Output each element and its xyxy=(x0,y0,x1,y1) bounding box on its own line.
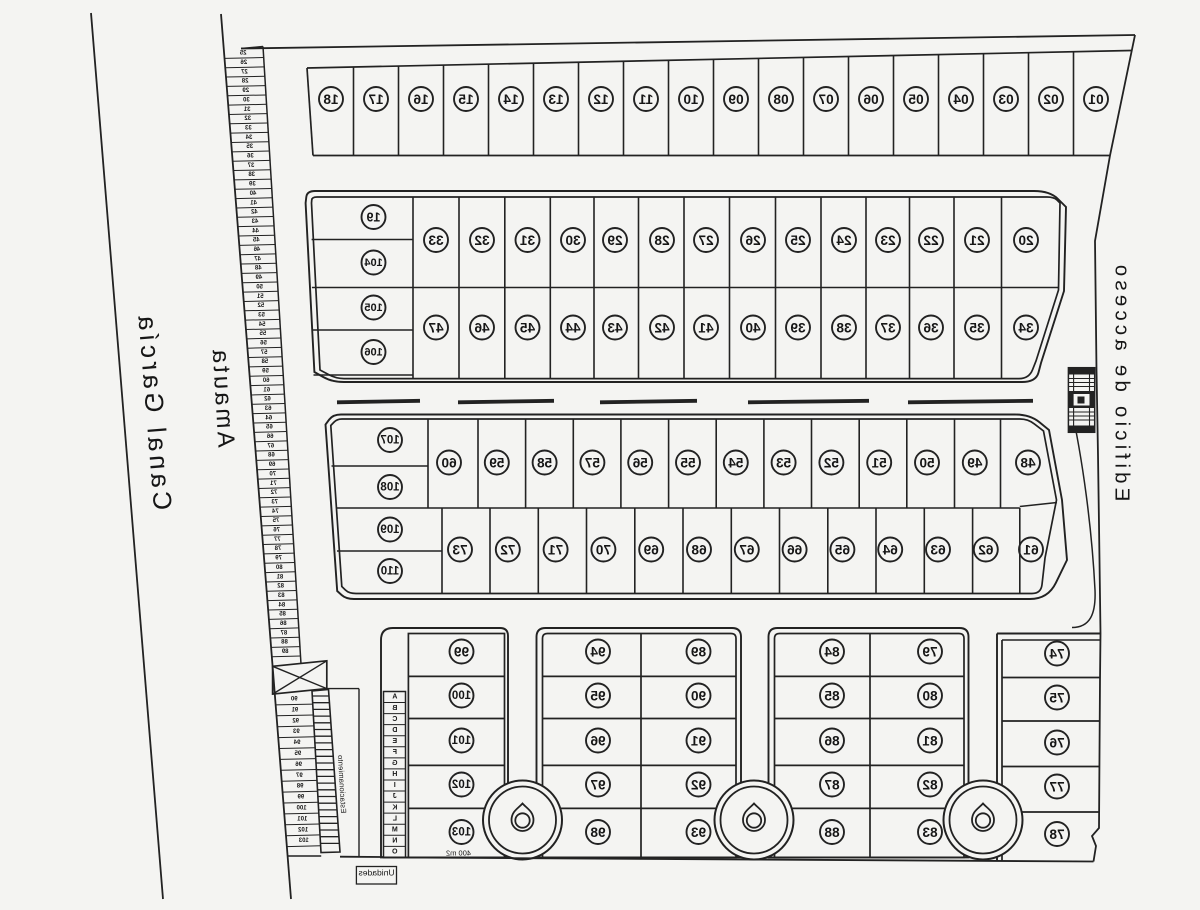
svg-text:47: 47 xyxy=(428,321,443,336)
svg-text:23: 23 xyxy=(880,233,896,248)
svg-text:48: 48 xyxy=(254,266,261,272)
svg-text:80: 80 xyxy=(275,565,282,571)
svg-text:82: 82 xyxy=(277,584,284,590)
svg-text:37: 37 xyxy=(880,321,895,336)
svg-text:70: 70 xyxy=(596,543,611,558)
svg-text:60: 60 xyxy=(441,456,456,471)
svg-text:55: 55 xyxy=(259,331,266,337)
svg-text:50: 50 xyxy=(919,456,934,471)
svg-text:69: 69 xyxy=(643,543,659,558)
svg-text:92: 92 xyxy=(292,718,299,724)
svg-text:44: 44 xyxy=(565,321,581,336)
svg-text:46: 46 xyxy=(474,321,490,336)
svg-text:84: 84 xyxy=(278,602,285,608)
svg-text:64: 64 xyxy=(882,543,898,558)
svg-text:30: 30 xyxy=(242,97,249,103)
svg-text:01: 01 xyxy=(1088,92,1104,107)
svg-text:63: 63 xyxy=(264,406,271,412)
svg-text:58: 58 xyxy=(537,456,553,471)
svg-text:88: 88 xyxy=(281,640,288,646)
svg-text:58: 58 xyxy=(261,359,268,365)
svg-text:97: 97 xyxy=(590,778,605,793)
svg-text:73: 73 xyxy=(271,499,278,505)
svg-text:95: 95 xyxy=(294,751,301,757)
svg-text:90: 90 xyxy=(691,689,706,704)
svg-text:03: 03 xyxy=(998,92,1014,107)
svg-text:42: 42 xyxy=(250,210,257,216)
svg-text:30: 30 xyxy=(565,233,580,248)
svg-text:109: 109 xyxy=(380,524,399,536)
svg-text:27: 27 xyxy=(698,233,713,248)
svg-text:09: 09 xyxy=(728,92,744,107)
svg-text:H: H xyxy=(392,771,397,778)
svg-text:71: 71 xyxy=(269,481,276,487)
svg-text:33: 33 xyxy=(428,233,444,248)
svg-text:51: 51 xyxy=(871,456,887,471)
svg-text:27: 27 xyxy=(240,69,247,75)
svg-text:13: 13 xyxy=(548,92,564,107)
svg-text:F: F xyxy=(392,749,397,756)
svg-text:82: 82 xyxy=(922,778,938,793)
svg-text:94: 94 xyxy=(293,740,300,746)
svg-text:41: 41 xyxy=(698,321,714,336)
svg-text:02: 02 xyxy=(1043,92,1059,107)
svg-text:79: 79 xyxy=(275,556,282,562)
svg-text:78: 78 xyxy=(274,546,281,552)
svg-text:M: M xyxy=(392,826,398,833)
svg-text:69: 69 xyxy=(268,462,275,468)
svg-text:E: E xyxy=(392,738,397,745)
svg-text:42: 42 xyxy=(654,321,670,336)
svg-text:102: 102 xyxy=(297,827,308,833)
svg-text:N: N xyxy=(392,837,397,844)
svg-text:76: 76 xyxy=(273,528,280,534)
svg-text:400 m2: 400 m2 xyxy=(446,848,471,857)
svg-text:52: 52 xyxy=(823,456,839,471)
svg-text:61: 61 xyxy=(263,387,270,393)
svg-text:43: 43 xyxy=(607,321,623,336)
svg-text:40: 40 xyxy=(745,321,760,336)
svg-text:67: 67 xyxy=(739,543,754,558)
svg-text:40: 40 xyxy=(249,191,256,197)
svg-text:17: 17 xyxy=(368,92,383,107)
svg-text:39: 39 xyxy=(790,321,806,336)
svg-text:88: 88 xyxy=(824,825,840,840)
svg-text:57: 57 xyxy=(260,350,267,356)
svg-text:85: 85 xyxy=(824,689,840,704)
svg-text:62: 62 xyxy=(978,543,994,558)
svg-text:26: 26 xyxy=(745,233,761,248)
svg-text:28: 28 xyxy=(654,233,670,248)
svg-text:A: A xyxy=(392,694,397,701)
svg-text:O: O xyxy=(392,849,398,856)
svg-text:63: 63 xyxy=(930,543,946,558)
svg-text:08: 08 xyxy=(773,92,789,107)
svg-text:32: 32 xyxy=(244,116,251,122)
svg-text:74: 74 xyxy=(1049,647,1065,662)
svg-text:98: 98 xyxy=(296,784,303,790)
svg-text:93: 93 xyxy=(691,825,707,840)
svg-text:57: 57 xyxy=(585,456,600,471)
svg-text:78: 78 xyxy=(1049,827,1065,842)
svg-text:87: 87 xyxy=(824,778,839,793)
svg-text:43: 43 xyxy=(251,219,258,225)
svg-text:98: 98 xyxy=(590,825,606,840)
svg-text:B: B xyxy=(392,705,397,712)
svg-text:77: 77 xyxy=(1049,780,1064,795)
svg-text:J: J xyxy=(393,793,397,800)
svg-text:D: D xyxy=(392,727,397,734)
svg-text:10: 10 xyxy=(683,92,698,107)
svg-text:06: 06 xyxy=(863,92,879,107)
svg-text:04: 04 xyxy=(953,92,969,107)
svg-text:65: 65 xyxy=(834,543,850,558)
svg-text:Edificio de acceso: Edificio de acceso xyxy=(1111,261,1134,502)
svg-text:44: 44 xyxy=(252,228,259,234)
svg-text:24: 24 xyxy=(836,233,852,248)
svg-text:50: 50 xyxy=(256,284,263,290)
svg-text:25: 25 xyxy=(790,233,806,248)
svg-text:66: 66 xyxy=(787,543,803,558)
svg-text:56: 56 xyxy=(260,341,267,347)
svg-text:Unidades: Unidades xyxy=(359,868,395,878)
svg-text:I: I xyxy=(394,782,396,789)
svg-text:12: 12 xyxy=(593,92,609,107)
svg-text:70: 70 xyxy=(269,471,276,477)
svg-text:38: 38 xyxy=(836,321,852,336)
svg-text:83: 83 xyxy=(922,825,938,840)
svg-text:59: 59 xyxy=(489,456,505,471)
svg-text:81: 81 xyxy=(276,574,283,580)
svg-text:35: 35 xyxy=(246,144,253,150)
svg-text:31: 31 xyxy=(520,233,536,248)
svg-text:32: 32 xyxy=(474,233,490,248)
svg-text:11: 11 xyxy=(638,92,653,107)
svg-text:G: G xyxy=(392,760,398,767)
svg-text:72: 72 xyxy=(500,543,516,558)
svg-text:53: 53 xyxy=(258,312,265,318)
svg-text:103: 103 xyxy=(298,838,309,844)
svg-text:91: 91 xyxy=(291,707,298,713)
svg-text:54: 54 xyxy=(258,322,265,328)
svg-text:85: 85 xyxy=(279,612,286,618)
svg-text:64: 64 xyxy=(265,415,272,421)
svg-text:104: 104 xyxy=(363,257,382,269)
svg-text:37: 37 xyxy=(247,163,254,169)
svg-text:89: 89 xyxy=(691,645,707,660)
svg-text:105: 105 xyxy=(364,302,382,314)
svg-text:68: 68 xyxy=(691,543,707,558)
svg-text:39: 39 xyxy=(248,182,255,188)
svg-text:15: 15 xyxy=(458,92,474,107)
svg-text:35: 35 xyxy=(969,321,985,336)
svg-text:107: 107 xyxy=(380,435,399,447)
svg-text:102: 102 xyxy=(452,779,471,791)
svg-text:60: 60 xyxy=(262,378,269,384)
svg-text:68: 68 xyxy=(267,453,274,459)
svg-text:07: 07 xyxy=(818,92,833,107)
svg-text:90: 90 xyxy=(290,696,297,702)
svg-text:29: 29 xyxy=(607,233,623,248)
svg-text:54: 54 xyxy=(728,456,744,471)
svg-text:21: 21 xyxy=(969,233,985,248)
svg-text:25: 25 xyxy=(239,51,246,57)
svg-text:29: 29 xyxy=(242,88,249,94)
svg-text:05: 05 xyxy=(908,92,924,107)
svg-text:51: 51 xyxy=(256,294,263,300)
svg-text:96: 96 xyxy=(295,762,302,768)
svg-text:65: 65 xyxy=(265,425,272,431)
svg-text:84: 84 xyxy=(824,645,840,660)
svg-text:62: 62 xyxy=(263,397,270,403)
svg-text:86: 86 xyxy=(279,621,286,627)
svg-text:19: 19 xyxy=(367,211,381,225)
svg-text:89: 89 xyxy=(281,649,288,655)
svg-text:96: 96 xyxy=(590,734,606,749)
svg-text:95: 95 xyxy=(590,689,606,704)
svg-text:46: 46 xyxy=(253,247,260,253)
svg-text:100: 100 xyxy=(452,690,471,702)
svg-text:74: 74 xyxy=(271,509,278,515)
svg-text:22: 22 xyxy=(923,233,939,248)
svg-text:80: 80 xyxy=(922,689,937,704)
svg-text:26: 26 xyxy=(240,60,247,66)
svg-text:101: 101 xyxy=(451,735,471,747)
svg-text:87: 87 xyxy=(280,630,287,636)
svg-text:31: 31 xyxy=(243,107,250,113)
svg-text:L: L xyxy=(392,815,397,822)
svg-text:20: 20 xyxy=(1018,233,1033,248)
svg-text:C: C xyxy=(392,716,397,723)
svg-text:34: 34 xyxy=(245,135,252,141)
svg-text:33: 33 xyxy=(244,125,251,131)
svg-text:110: 110 xyxy=(381,566,400,578)
svg-text:86: 86 xyxy=(824,734,840,749)
svg-text:77: 77 xyxy=(273,537,280,543)
svg-text:38: 38 xyxy=(248,172,255,178)
svg-text:28: 28 xyxy=(241,79,248,85)
svg-text:106: 106 xyxy=(364,347,382,359)
svg-text:99: 99 xyxy=(454,645,470,660)
svg-text:76: 76 xyxy=(1049,736,1065,751)
svg-text:99: 99 xyxy=(297,795,304,801)
svg-text:49: 49 xyxy=(255,275,262,281)
svg-text:71: 71 xyxy=(548,543,564,558)
svg-text:14: 14 xyxy=(503,92,519,107)
svg-text:K: K xyxy=(392,804,397,811)
svg-text:75: 75 xyxy=(1049,691,1065,706)
svg-text:75: 75 xyxy=(272,518,279,524)
svg-text:34: 34 xyxy=(1018,321,1034,336)
svg-text:52: 52 xyxy=(257,303,264,309)
svg-text:66: 66 xyxy=(266,434,273,440)
svg-text:36: 36 xyxy=(246,154,253,160)
svg-text:93: 93 xyxy=(292,729,299,735)
svg-text:79: 79 xyxy=(922,645,938,660)
svg-text:97: 97 xyxy=(295,773,302,779)
svg-text:18: 18 xyxy=(323,92,339,107)
svg-text:45: 45 xyxy=(520,321,536,336)
svg-text:67: 67 xyxy=(267,443,274,449)
svg-text:16: 16 xyxy=(413,92,429,107)
svg-text:92: 92 xyxy=(691,778,707,793)
svg-text:94: 94 xyxy=(590,645,606,660)
svg-text:59: 59 xyxy=(261,369,268,375)
svg-text:41: 41 xyxy=(250,200,257,206)
svg-text:108: 108 xyxy=(380,482,400,494)
svg-text:47: 47 xyxy=(254,256,261,262)
svg-text:81: 81 xyxy=(922,734,938,749)
svg-text:91: 91 xyxy=(691,734,707,749)
svg-text:36: 36 xyxy=(923,321,939,336)
svg-text:72: 72 xyxy=(270,490,277,496)
svg-text:56: 56 xyxy=(632,456,648,471)
svg-text:101: 101 xyxy=(297,816,308,822)
svg-text:48: 48 xyxy=(1020,456,1036,471)
svg-text:83: 83 xyxy=(277,593,284,599)
svg-text:55: 55 xyxy=(680,456,696,471)
svg-text:103: 103 xyxy=(452,827,471,839)
svg-text:73: 73 xyxy=(452,543,468,558)
svg-text:53: 53 xyxy=(776,456,792,471)
svg-text:49: 49 xyxy=(967,456,983,471)
svg-text:61: 61 xyxy=(1023,543,1039,558)
svg-text:100: 100 xyxy=(296,805,307,811)
svg-text:45: 45 xyxy=(252,238,259,244)
